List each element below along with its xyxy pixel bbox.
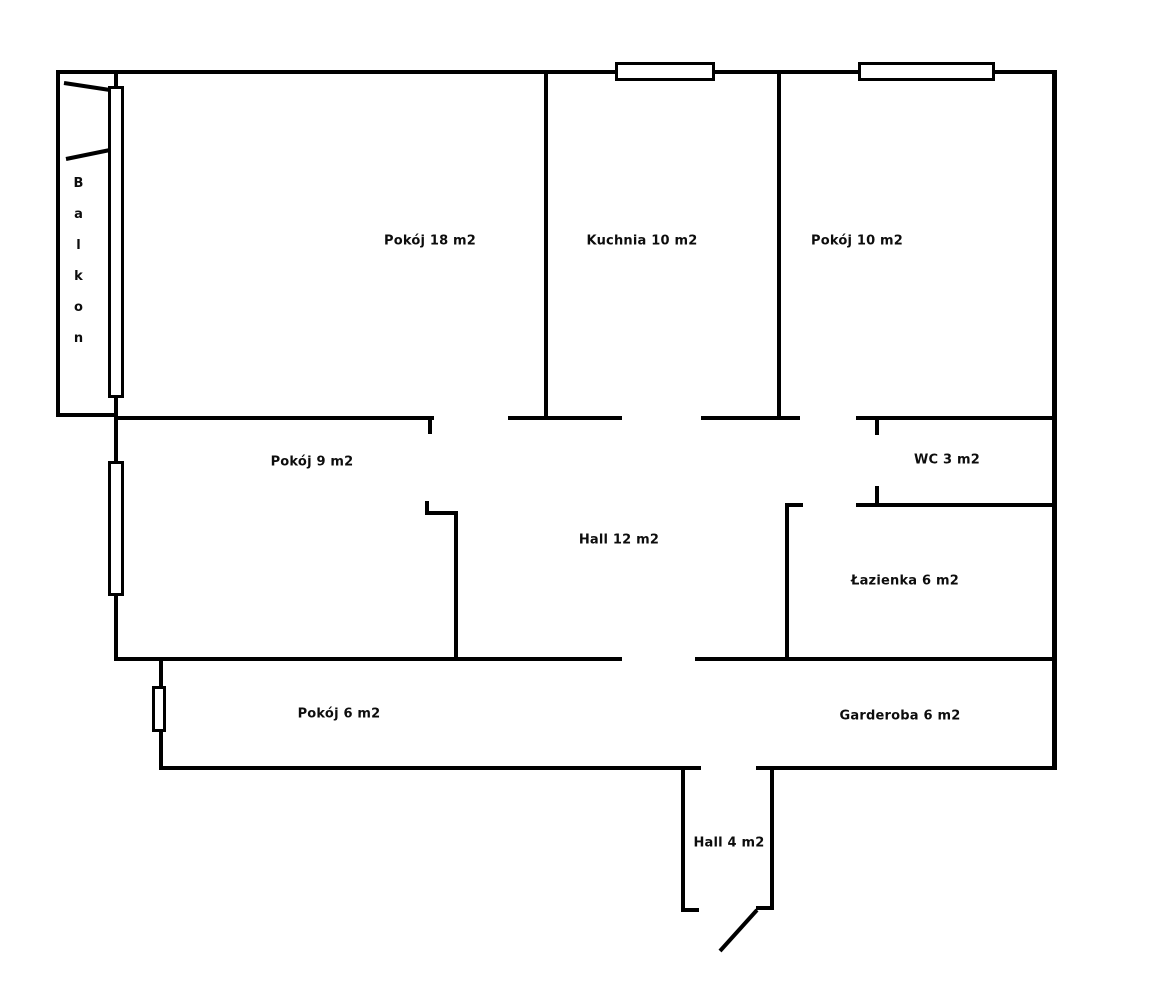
wall-wc-bottom [856,503,1057,507]
balcony-wall-left [56,70,60,417]
wall-hall4-left-foot [681,908,699,912]
wall-mid-seg-corridor-top [701,416,800,420]
wall-lazienka-left [785,503,789,661]
wall-left-lower [114,593,118,661]
balcony-wall-top [56,70,118,74]
room-label-garderoba: Garderoba 6 m2 [840,709,961,724]
balcony-letter: B [74,177,84,190]
pokoj10-window [858,62,995,81]
balcony-door-window [108,86,124,398]
kuchnia-window [615,62,715,81]
balcony-door-swing-upper-icon [64,83,110,90]
balcony-door-swing-lower-icon [66,150,110,159]
wall-bottom-seg-left [159,766,701,770]
room-label-lazienka: Łazienka 6 m2 [851,574,959,589]
wall-kitchen-right [777,70,781,418]
balcony-letter: n [74,332,83,345]
balcony-label: B a l k o n [71,177,86,345]
wall-hall4-left [681,768,685,912]
pokoj9-window [108,461,124,596]
room-label-pokoj10: Pokój 10 m2 [811,234,903,249]
room-label-pokoj6: Pokój 6 m2 [298,707,381,722]
balcony-letter: l [76,239,80,252]
wall-mid-seg-pokoj9-top [114,416,434,420]
balcony-letter: k [74,270,83,283]
entry-door-swing-icon [720,910,757,951]
wall-bottom-seg-right [756,766,1057,770]
floor-plan: B a l k o n Pokój 18 m2 Kuchnia 10 m2 Po… [0,0,1151,1000]
pokoj6-window [152,686,166,732]
room-label-hall4: Hall 4 m2 [693,836,764,851]
wall-kitchen-left [544,70,548,420]
wall-hall-bottom-left [114,657,622,661]
wall-hall-bottom-right [695,657,1057,661]
wall-mid-seg-kitchen-bottom [508,416,622,420]
balcony-letter: o [74,301,83,314]
balcony-wall-bottom [56,413,118,417]
balcony-letter: a [74,208,83,221]
room-label-hall12: Hall 12 m2 [579,533,659,548]
wall-hall4-right-foot [756,906,774,910]
room-label-kuchnia: Kuchnia 10 m2 [587,234,698,249]
room-label-wc: WC 3 m2 [914,453,980,468]
wall-pokoj9-jog [425,511,458,515]
wall-right [1052,70,1057,770]
door-swing-overlay [0,0,1151,1000]
wall-hall4-right [770,768,774,910]
wall-lazienka-door-jamb [785,503,803,507]
room-label-pokoj9: Pokój 9 m2 [271,455,354,470]
wall-left-middle [114,395,118,465]
wall-wc-top [856,416,1057,420]
room-label-pokoj18: Pokój 18 m2 [384,234,476,249]
wall-pokoj9-right [454,513,458,661]
